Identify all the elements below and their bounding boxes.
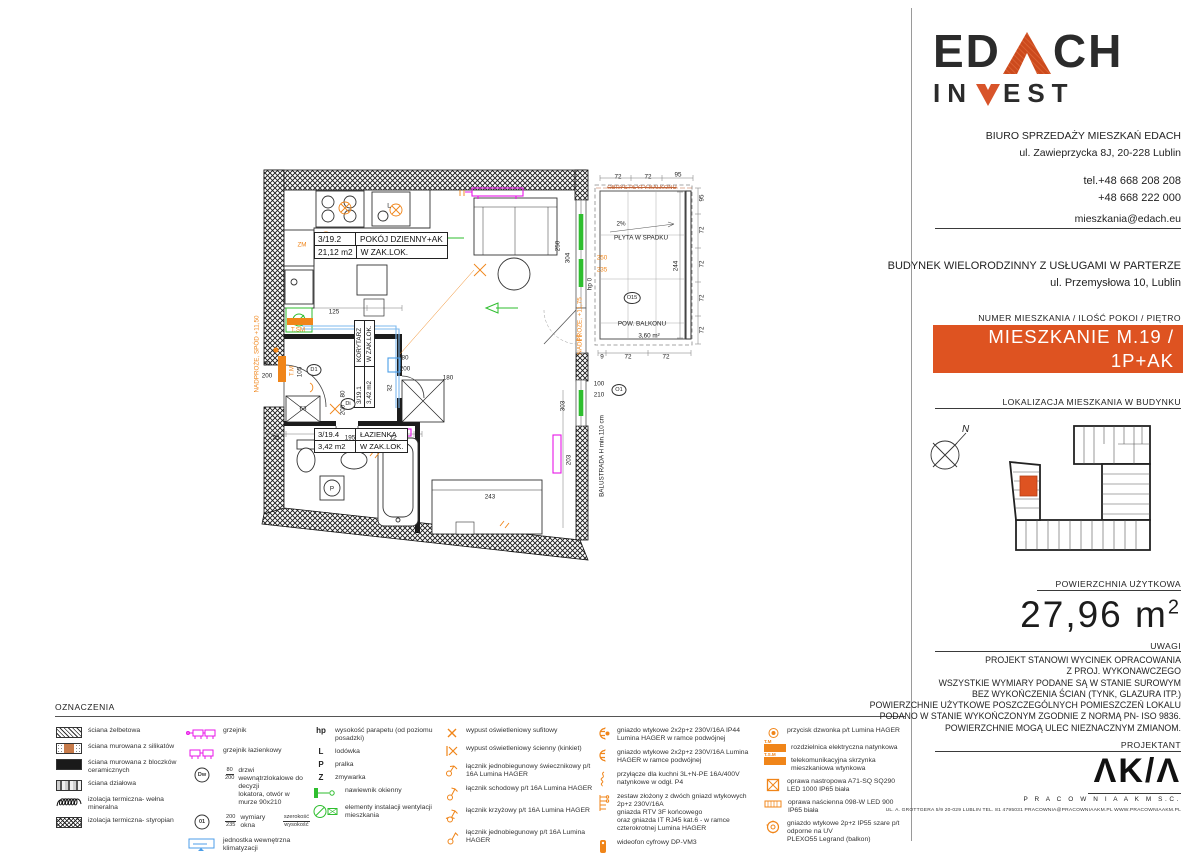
legend-item: wideofon cyfrowy DP-VM3 [594,839,762,855]
legend-item-label: ściana żelbetowa [88,727,140,735]
plan-label: 180 [443,375,454,382]
radiator-icon [186,727,218,740]
plan-label: L [387,203,391,210]
zestaw-icon [594,793,612,813]
plan-label: P [330,486,334,493]
uwagi-header: UWAGI [1150,641,1181,651]
plan-label: POW. BALKONU [618,321,666,328]
legend-item: łącznik jednobiegunowy p/t 16A Lumina HA… [443,829,593,845]
plan-label: 72 [662,354,669,361]
radiator-bath-icon [186,747,218,760]
legend-item: gniazdo wtykowe 2x2p+z 230V/16A Lumina H… [594,749,762,765]
legend-item-label: drzwi wewnątrzlokalowe do decyzji lokato… [238,767,310,807]
plan-label: T.SM [291,327,305,334]
legend-item: ściana działowa [55,780,185,791]
compass-n-label: N [962,424,969,435]
legend-item: ściana murowana z bloczków ceramicznych [55,759,185,775]
legend-item-label: ściana murowana z silikatów [88,743,174,751]
plan-label: 72 [699,294,706,301]
plan-label: 63 [299,406,306,413]
silikat-icon [55,743,83,754]
legend-item-label: wysokość parapetu (od poziomu posadzki) [335,727,440,743]
plan-label: 200 [400,366,411,373]
logo-text-in: IN [933,80,973,106]
area-superscript: 2 [1168,597,1181,619]
legend-item: ściana żelbetowa [55,727,185,738]
plan-label: 95 [674,172,681,179]
rule-above-akm-sub [1088,793,1181,794]
lampx-icon [443,727,461,739]
email: mieszkania@edach.eu [1075,211,1181,227]
boxfill-icon: T.S.M [764,757,786,765]
plan-label: 90 [263,361,270,368]
plan-label: 250 [597,255,608,262]
legend-item: gniazdo wtykowe 2p+z IP55 szare p/t odpo… [764,820,908,844]
plan-label: BALUSTRADA H min.110 cm [599,415,606,497]
plan-label: 244 [673,261,680,272]
uwagi-line: POWIERZCHNIE MOGĄ ULEC NIEZNACZNYM ZMIAN… [870,723,1181,734]
highlighted-unit [1020,476,1037,496]
akm-logo: ΛΚ/Λ [1094,752,1181,791]
legend-item-label: gniazdo wtykowe 2x2p+z 230V/16A IP44 Lum… [617,727,762,743]
plan-label: PŁYTA W SPADKU [614,235,668,242]
plan-label: 304 [565,253,572,264]
circle-icon: 01 [186,814,218,830]
legend-item: gniazdo wtykowe 2x2p+z 230V/16A IP44 Lum… [594,727,762,743]
unit-header: NUMER MIESZKANIA / ILOŚĆ POKOI / PIĘTRO [978,313,1181,323]
legend-fraction: szerokośćwysokość [283,814,310,828]
legend-item-label: grzejnik [223,727,246,735]
legend-item-label: nawiewnik okienny [345,787,402,795]
letter-icon: P [312,761,330,769]
legend-item-label: pralka [335,761,354,769]
legend-item-label: oprawa nastropowa A71-SQ SQ290 LED 1000 … [787,778,908,794]
legend-item-label: elementy instalacji wentylacji mieszkani… [345,804,440,820]
oprawa-scienna-icon [764,799,783,809]
banner-line1: MIESZKANIE M.19 / 1P+AK [933,325,1174,373]
legend-item-label: jednostka wewnętrzna klimatyzacji [223,837,310,853]
plan-label: 243 [485,494,496,501]
legend-item: oprawa nastropowa A71-SQ SQ290 LED 1000 … [764,778,908,794]
oprawa-sufit-icon [764,778,782,792]
building-line1: BUDYNEK WIELORODZINNY Z USŁUGAMI W PARTE… [888,258,1181,275]
legend-item-label: ściana działowa [88,780,136,788]
rule-under-area-header [1037,590,1181,591]
plan-label: NADPROŻE, +11,75 [577,297,584,354]
legend-item-label: zmywarka [335,774,366,782]
circle-icon: Dw [186,767,218,783]
uwagi-notes: PROJEKT STANOWI WYCINEK OPRACOWANIAZ PRO… [870,655,1181,734]
legend-column: ściana żelbetowaściana murowana z silika… [55,727,185,833]
legend-item: hpwysokość parapetu (od poziomu posadzki… [312,727,440,743]
plan-label: 200 [262,373,273,380]
apartment-banner: MIESZKANIE M.19 / 1P+AK PIĘTRO 3 [933,325,1183,373]
plan-label: OBRYS PŁYTY BALKONU [607,185,676,191]
plan-label: 9 [600,354,604,361]
legend-item-label: telekomunikacyjna skrzynka mieszkaniowa … [791,757,908,773]
kuchnia-icon [594,771,612,787]
legend-item: łącznik jednobiegunowy świecznikowy p/t … [443,763,593,779]
plan-reference-circle: O1 [612,384,627,396]
legend-item-label: rozdzielnica elektryczna natynkowa [791,744,898,752]
legend-item: Zzmywarka [312,774,440,782]
building-location-map [990,420,1180,585]
legend-item: jednostka wewnętrzna klimatyzacji [186,837,310,853]
usable-area-value: 27,96 m2 [1020,594,1181,636]
rule-under-email [935,228,1181,229]
legend-item-label: wypust oświetleniowy sufitowy [466,727,557,735]
phone-1: tel.+48 668 208 208 [1083,173,1181,190]
socket-icon [594,749,612,762]
floor-plan: 3/19.2POKÓJ DZIENNY+AK 21,12 m2W ZAK.LOK… [250,158,715,578]
legend-item: ściana murowana z silikatów [55,743,185,754]
plan-label: 203 [566,455,573,466]
plan-label: 195 [345,435,356,442]
legend-item-label: wypust oświetleniowy ścienny (kinkiet) [466,745,582,753]
letter-icon: L [312,748,330,756]
plan-label: 32 [387,384,394,391]
plan-label: 35 [272,435,279,442]
uwagi-line: WSZYSTKIE WYMIARY PODANE SĄ W STANIE SUR… [870,678,1181,689]
sw-jedno-icon [443,829,461,845]
plan-label: 100 [594,381,605,388]
plan-label: 303 [560,401,567,412]
uwagi-line: POWIERZCHNIE UŻYTKOWE POSZCZEGÓLNYCH POM… [870,700,1181,711]
hatch-icon [55,727,83,738]
vent-icon [312,804,340,819]
legend-item-label: przyłącze dla kuchni 3L+N-PE 16A/400V na… [617,771,762,787]
legend-item: łącznik schodowy p/t 16A Lumina HAGER [443,785,593,801]
plan-label: 3,60 m² [638,333,659,340]
area-header: POWIERZCHNIA UŻYTKOWA [1055,579,1181,589]
plan-annotations: 727295972729572727272244304250hp 0250235… [250,158,715,578]
legend-item: wypust oświetleniowy sufitowy [443,727,593,739]
office-line2: ul. Zawieprzycka 8J, 20-228 Lublin [1019,145,1181,161]
legend-item: wypust oświetleniowy ścienny (kinkiet) [443,745,593,757]
plan-label: 12 [389,435,396,442]
legend-item: łącznik krzyżowy p/t 16A Lumina HAGER [443,807,593,823]
akm-subtitle: P R A C O W N I A A K M S.C. [1023,796,1181,803]
logo-text-ed: ED [933,28,1001,74]
wideofon-icon [594,839,612,855]
plan-label: hp 0 [587,278,594,290]
plan-label: T.M [289,366,296,376]
legend-item-label: łącznik schodowy p/t 16A Lumina HAGER [466,785,592,793]
solid-icon [55,759,83,770]
akm-footer: UL. A. GROTTGERA 5/9 20-029 LUBLIN TEL. … [886,808,1181,813]
legend-column: grzejnikgrzejnik łazienkowyDw80200drzwi … [186,727,310,860]
socket44-icon [594,727,612,740]
legend-item: zestaw złożony z dwóch gniazd wtykowych … [594,793,762,833]
legend-item-label: gniazdo wtykowe 2x2p+z 230V/16A Lumina H… [617,749,762,765]
plan-label: 80 [401,355,408,362]
plan-label: 72 [624,354,631,361]
legend-title: OZNACZENIA [55,702,115,712]
legend-item: elementy instalacji wentylacji mieszkani… [312,804,440,820]
legend-item: przyłącze dla kuchni 3L+N-PE 16A/400V na… [594,771,762,787]
legend-item: Ppralka [312,761,440,769]
letter-icon: hp [312,727,330,735]
klima-icon [186,837,218,852]
wool-icon [55,796,83,808]
gniazdo55-icon [764,820,782,834]
plan-label: 2% [616,221,625,228]
uwagi-line: PODANO W STANIE WYKOŃCZONYM ZGODNIE Z NO… [870,711,1181,722]
legend-item-label: zestaw złożony z dwóch gniazd wtykowych … [617,793,762,833]
plan-label: 95 [699,194,706,201]
plan-label: 72 [699,226,706,233]
styro-icon [55,817,83,828]
location-header: LOKALIZACJA MIESZKANIA W BUDYNKU [1002,397,1181,407]
projektant-header: PROJEKTANT [1121,740,1181,750]
sw-schodowy-icon [443,785,461,801]
edach-invest-logo: ED CH IN EST [933,28,1123,106]
legend-column: gniazdo wtykowe 2x2p+z 230V/16A IP44 Lum… [594,727,762,861]
logo-text-ch: CH [1053,28,1123,74]
plan-label: 72 [699,326,706,333]
legend-item: Dw80200drzwi wewnątrzlokalowe do decyzji… [186,767,310,807]
dzialowa-icon [55,780,83,791]
plan-label: 72 [614,174,621,181]
plan-label: 200 [340,405,347,416]
plan-label: 80 [340,390,347,397]
legend-item: izolacja termiczna- wełna mineralna [55,796,185,812]
legend-fraction: 200235 [225,814,236,828]
plan-label: NADPROŻE, SPÓD +11,50 [254,315,261,392]
rule-under-location [935,408,1181,409]
plan-label: 125 [329,309,340,316]
legend-item-label: wymiary okna [240,814,274,830]
plan-label: 105 [297,367,304,378]
legend-rule [55,716,905,717]
uwagi-line: Z PROJ. WYKONAWCZEGO [870,666,1181,677]
legend-item-label: wideofon cyfrowy DP-VM3 [617,839,697,847]
legend-item: T.Mrozdzielnica elektryczna natynkowa [764,744,908,752]
sw-swiecznik-icon [443,763,461,777]
legend-column: hpwysokość parapetu (od poziomu posadzki… [312,727,440,825]
plan-reference-circle: O15 [624,292,641,304]
plan-label: 250 [555,241,562,252]
legend-item-label: lodówka [335,748,360,756]
plan-label: 72 [644,174,651,181]
uwagi-line: PROJEKT STANOWI WYCINEK OPRACOWANIA [870,655,1181,666]
office-line1: BIURO SPRZEDAŻY MIESZKAŃ EDACH [986,128,1181,144]
legend-item-label: gniazdo wtykowe 2p+z IP55 szare p/t odpo… [787,820,908,844]
banner-line2: PIĘTRO 3 [933,373,1174,397]
logo-v-triangle-icon [976,84,1000,106]
phone-2: +48 668 222 000 [1098,190,1181,207]
logo-text-est: EST [1003,80,1075,106]
legend-item-label: łącznik jednobiegunowy świecznikowy p/t … [466,763,593,779]
plan-reference-circle: D1 [307,364,322,376]
plan-label: 210 [594,392,605,399]
sw-krzyzowy-icon [443,807,461,823]
logo-a-triangle-icon [1003,32,1051,74]
legend-item-label: izolacja termiczna- styropian [88,817,174,825]
plan-label: 235 [597,267,608,274]
legend-item: nawiewnik okienny [312,787,440,799]
lampwall-icon [443,745,461,757]
uwagi-line: BEZ WYKOŃCZENIA ŚCIAN (TYNK, GLAZURA ITP… [870,689,1181,700]
building-line2: ul. Przemysłowa 10, Lublin [1050,275,1181,292]
legend-item-label: łącznik krzyżowy p/t 16A Lumina HAGER [466,807,590,815]
plan-label: ZM [297,242,306,249]
legend-item-label: ściana murowana z bloczków ceramicznych [88,759,185,775]
legend-fraction: 80200 [225,767,234,781]
legend-item: 01200235wymiary oknaszerokośćwysokość [186,814,310,830]
plan-label: 72 [699,260,706,267]
letter-icon: Z [312,774,330,782]
legend-item-label: grzejnik łazienkowy [223,747,282,755]
legend-item-label: izolacja termiczna- wełna mineralna [88,796,185,812]
legend-item: Llodówka [312,748,440,756]
nawiewnik-icon [312,787,340,799]
legend-item: T.S.Mtelekomunikacyjna skrzynka mieszkan… [764,757,908,773]
legend-item-label: łącznik jednobiegunowy p/t 16A Lumina HA… [466,829,593,845]
legend-item: izolacja termiczna- styropian [55,817,185,828]
legend-column: wypust oświetleniowy sufitowywypust oświ… [443,727,593,851]
legend-item: grzejnik łazienkowy [186,747,310,760]
compass-icon: N [922,428,982,483]
rule-under-uwagi [935,651,1181,652]
legend-item: grzejnik [186,727,310,740]
legend-column: przycisk dzwonka p/t Lumina HAGERT.Mrozd… [764,727,908,849]
